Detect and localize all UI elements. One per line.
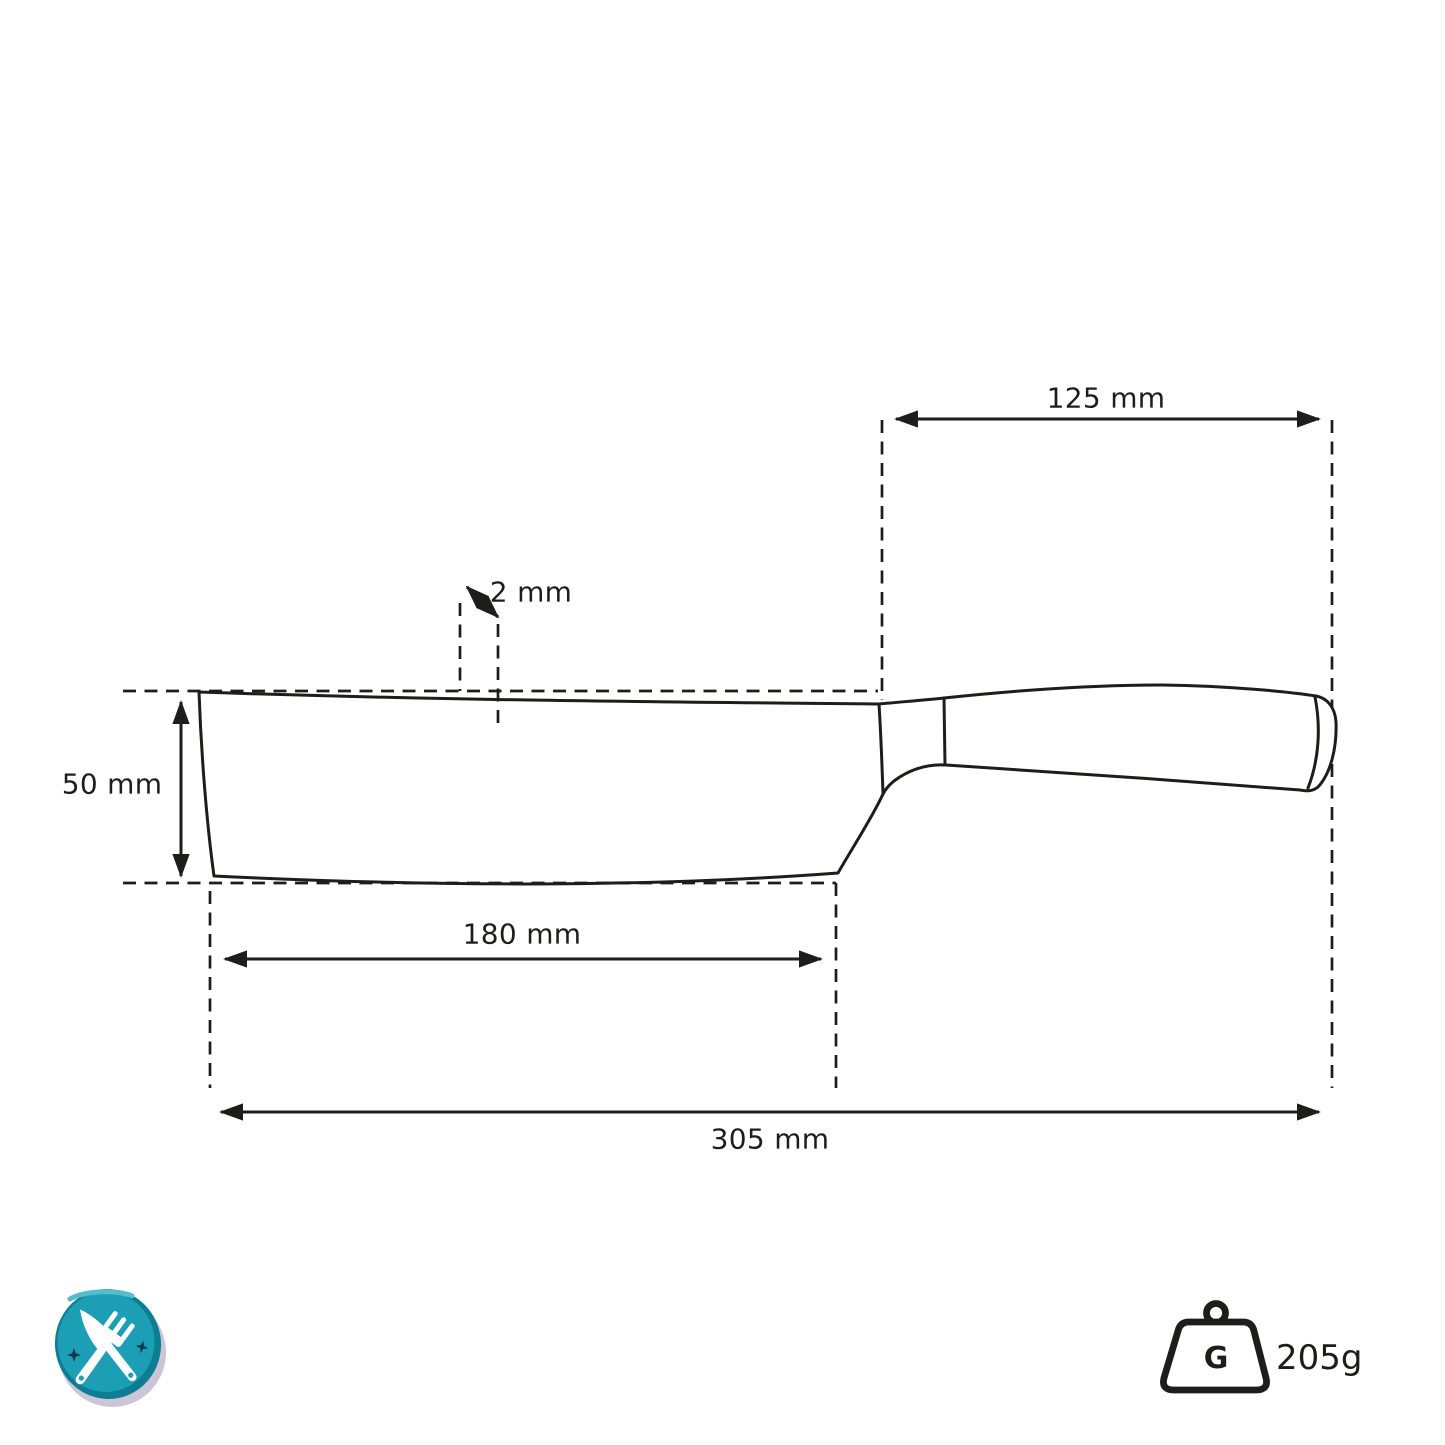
food-badge: [48, 1282, 175, 1415]
knife-dimension-diagram: G 125 mm 2 mm 50 mm 180 mm 305 mm 205g: [0, 0, 1445, 1445]
dimension-label-total-length: 305 mm: [711, 1123, 830, 1156]
diagram-svg: G: [0, 0, 1445, 1445]
dimension-label-blade-height: 50 mm: [62, 768, 163, 801]
weight-value: 205g: [1276, 1338, 1362, 1378]
weight-icon: G: [1163, 1304, 1266, 1391]
dimension-label-blade-length: 180 mm: [463, 918, 582, 951]
dimension-label-handle-length: 125 mm: [1047, 382, 1166, 415]
knife-drawing: [199, 685, 1336, 884]
weight-badge-letter: G: [1204, 1341, 1229, 1376]
dimension-label-spine-thickness: 2 mm: [490, 576, 572, 609]
handle-joint-line: [944, 698, 945, 765]
knife-outline: [199, 685, 1336, 884]
